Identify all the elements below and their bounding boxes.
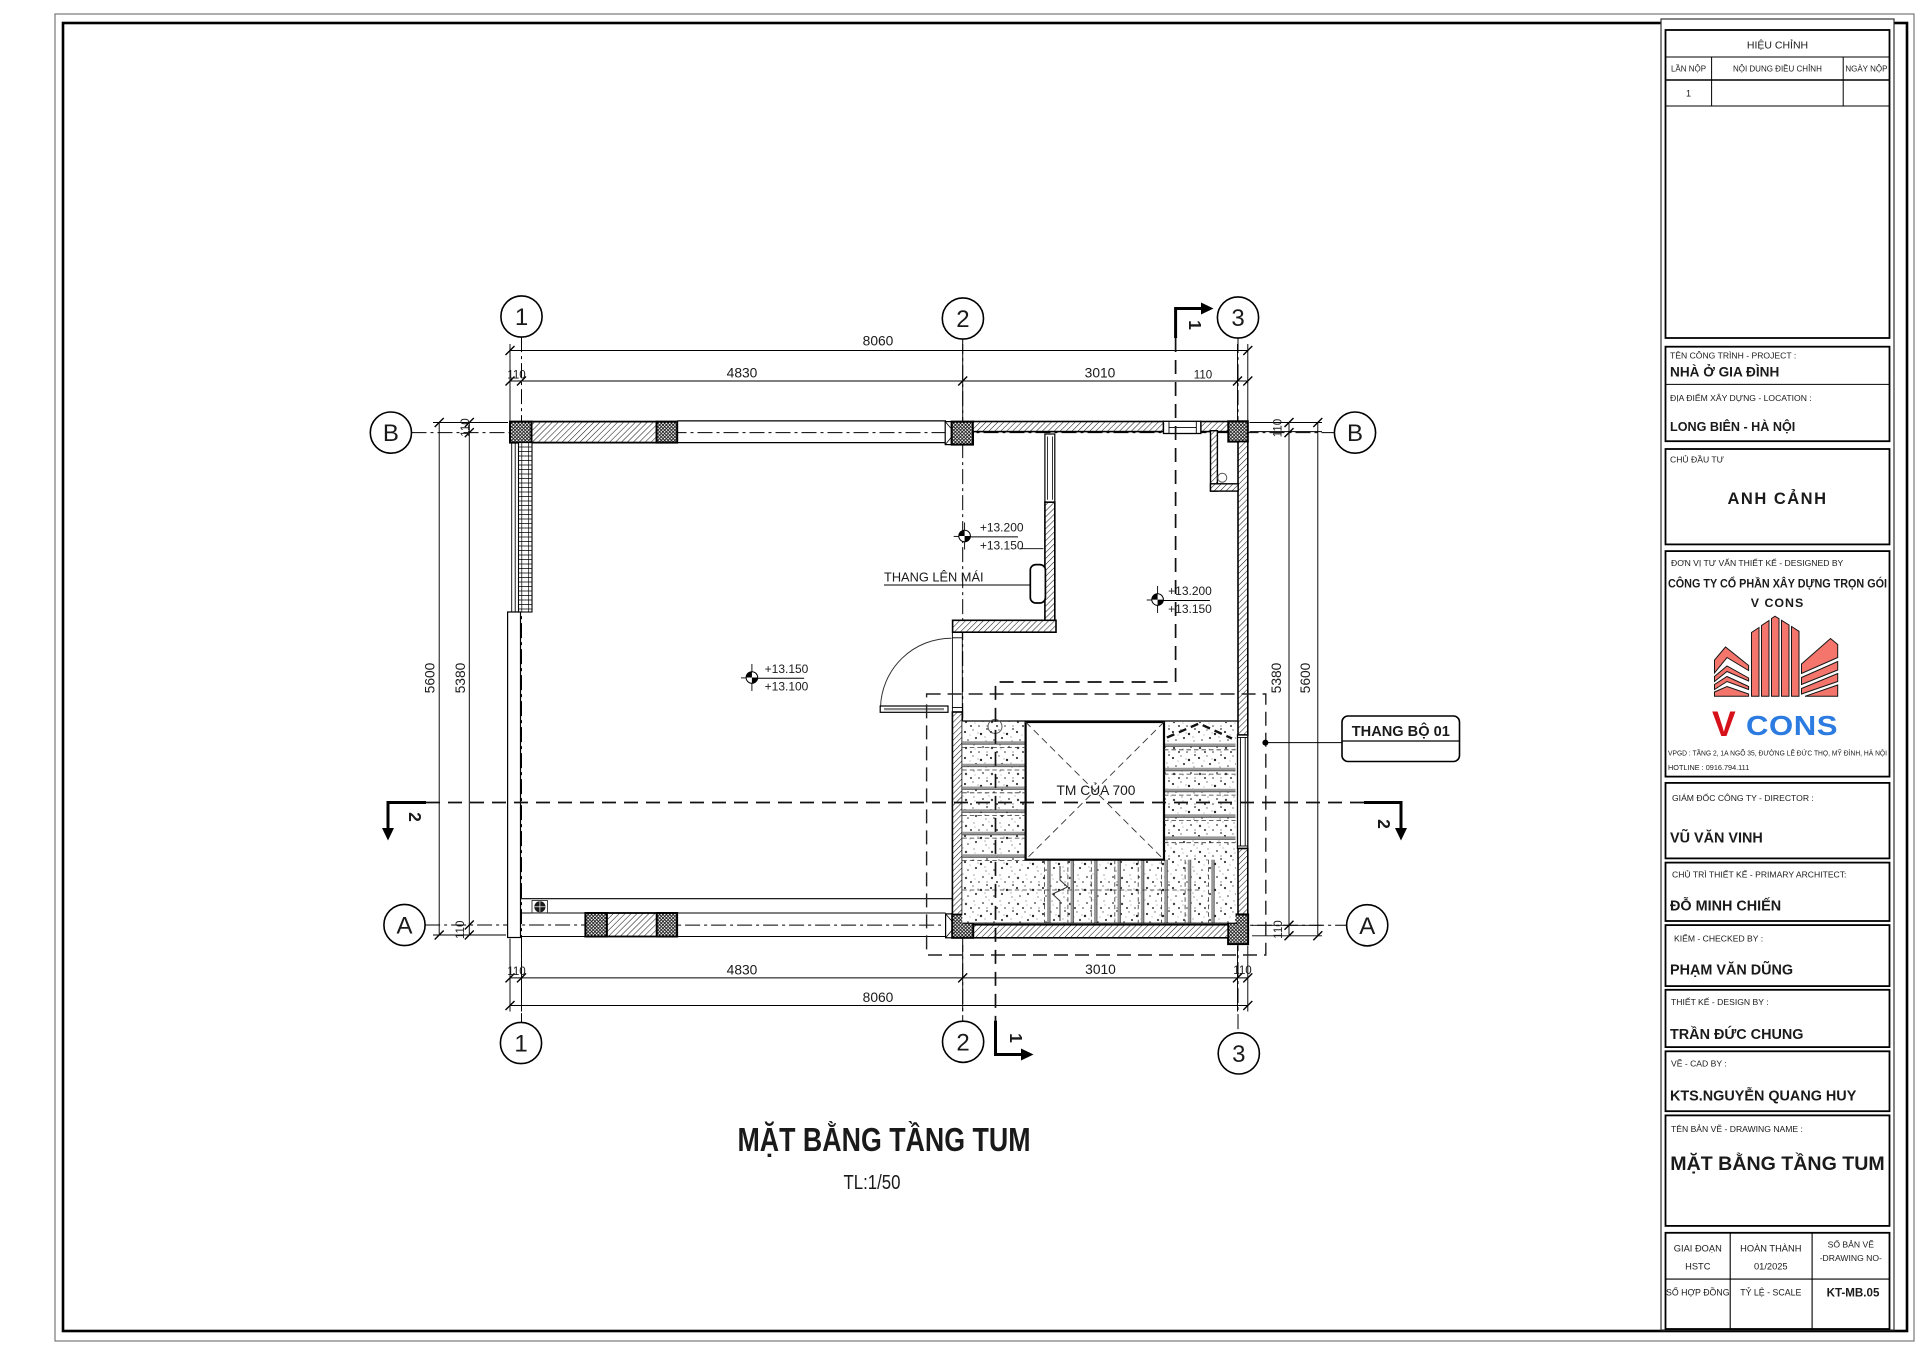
svg-text:SỐ HỢP ĐỒNG: SỐ HỢP ĐỒNG <box>1666 1287 1730 1298</box>
svg-text:+13.150: +13.150 <box>765 662 809 676</box>
svg-text:ĐỖ MINH CHIẾN: ĐỖ MINH CHIẾN <box>1670 896 1781 914</box>
svg-text:2: 2 <box>956 1029 969 1056</box>
svg-text:+13.150: +13.150 <box>980 539 1024 553</box>
svg-text:1: 1 <box>1686 89 1691 99</box>
svg-text:1: 1 <box>515 304 528 331</box>
svg-text:NHÀ Ở GIA ĐÌNH: NHÀ Ở GIA ĐÌNH <box>1670 365 1779 380</box>
svg-text:8060: 8060 <box>863 990 894 1005</box>
svg-text:KIỂM - CHECKED BY :: KIỂM - CHECKED BY : <box>1674 933 1763 944</box>
svg-text:3: 3 <box>1231 305 1244 332</box>
svg-text:VPGD : TẦNG 2, 1A NGÕ 35, ĐƯỜN: VPGD : TẦNG 2, 1A NGÕ 35, ĐƯỜNG LÊ ĐỨC T… <box>1668 747 1887 757</box>
svg-text:5600: 5600 <box>1298 662 1313 693</box>
svg-text:VẼ - CAD BY :: VẼ - CAD BY : <box>1671 1059 1727 1069</box>
svg-text:3010: 3010 <box>1085 962 1116 977</box>
svg-text:+13.100: +13.100 <box>765 680 809 694</box>
svg-text:5600: 5600 <box>423 662 438 693</box>
svg-text:THANG BỘ 01: THANG BỘ 01 <box>1352 722 1450 740</box>
svg-text:5380: 5380 <box>453 662 468 693</box>
svg-text:110: 110 <box>1233 964 1251 977</box>
svg-text:1: 1 <box>1006 1033 1026 1043</box>
svg-text:LẦN NỘP: LẦN NỘP <box>1671 64 1706 74</box>
svg-text:THIẾT KẾ - DESIGN BY :: THIẾT KẾ - DESIGN BY : <box>1671 997 1769 1007</box>
svg-text:THANG LÊN MÁI: THANG LÊN MÁI <box>884 570 984 585</box>
svg-text:GIAI ĐOẠN: GIAI ĐOẠN <box>1674 1244 1722 1254</box>
svg-text:CÔNG TY CỔ PHẦN XÂY DỰNG TRỌN: CÔNG TY CỔ PHẦN XÂY DỰNG TRỌN GÓI <box>1668 576 1887 591</box>
svg-text:HSTC: HSTC <box>1685 1262 1711 1272</box>
svg-text:1: 1 <box>1185 320 1205 330</box>
svg-text:4830: 4830 <box>727 962 758 977</box>
svg-text:110: 110 <box>459 418 472 436</box>
svg-text:ĐƠN VỊ TƯ VẤN THIẾT KẾ - DESIG: ĐƠN VỊ TƯ VẤN THIẾT KẾ - DESIGNED BY <box>1671 558 1844 568</box>
svg-text:PHẠM VĂN DŨNG: PHẠM VĂN DŨNG <box>1670 960 1793 978</box>
svg-text:+13.200: +13.200 <box>980 521 1024 535</box>
svg-text:8060: 8060 <box>863 334 894 349</box>
svg-text:110: 110 <box>1272 920 1285 938</box>
svg-text:HOÀN THÀNH: HOÀN THÀNH <box>1740 1244 1801 1254</box>
svg-text:MẶT BẰNG TẦNG TUM: MẶT BẰNG TẦNG TUM <box>1670 1151 1884 1175</box>
svg-text:01/2025: 01/2025 <box>1754 1262 1788 1272</box>
svg-text:ANH CẢNH: ANH CẢNH <box>1728 489 1828 508</box>
svg-text:2: 2 <box>956 306 969 333</box>
svg-text:TRẦN ĐỨC CHUNG: TRẦN ĐỨC CHUNG <box>1670 1025 1803 1043</box>
svg-text:2: 2 <box>405 812 425 822</box>
svg-text:NGÀY NỘP: NGÀY NỘP <box>1845 65 1887 74</box>
svg-text:GIÁM ĐỐC CÔNG TY - DIRECTOR :: GIÁM ĐỐC CÔNG TY - DIRECTOR : <box>1672 792 1814 803</box>
svg-text:TÊN BẢN VẼ - DRAWING NAME :: TÊN BẢN VẼ - DRAWING NAME : <box>1671 1123 1803 1134</box>
svg-text:110: 110 <box>1194 369 1212 382</box>
svg-text:SỐ BẢN VẼ: SỐ BẢN VẼ <box>1828 1239 1875 1250</box>
svg-text:4830: 4830 <box>727 366 758 381</box>
svg-text:-DRAWING NO-: -DRAWING NO- <box>1820 1253 1882 1263</box>
svg-text:KTS.NGUYỄN QUANG HUY: KTS.NGUYỄN QUANG HUY <box>1670 1088 1857 1105</box>
svg-text:A: A <box>396 913 412 940</box>
svg-text:CONS: CONS <box>1746 710 1838 741</box>
svg-text:KT-MB.05: KT-MB.05 <box>1827 1287 1880 1300</box>
svg-text:110: 110 <box>1272 419 1285 437</box>
svg-text:110: 110 <box>507 965 525 978</box>
svg-text:B: B <box>383 420 399 447</box>
svg-text:1: 1 <box>514 1031 527 1058</box>
svg-text:5380: 5380 <box>1269 662 1284 693</box>
svg-text:+13.150: +13.150 <box>1168 602 1212 616</box>
svg-text:CHỦ ĐẦU TƯ: CHỦ ĐẦU TƯ <box>1670 454 1724 465</box>
svg-text:B: B <box>1347 420 1363 447</box>
svg-text:TM CỦA 700: TM CỦA 700 <box>1057 781 1136 798</box>
svg-text:TL:1/50: TL:1/50 <box>844 1172 901 1194</box>
svg-text:LONG BIÊN - HÀ NỘI: LONG BIÊN - HÀ NỘI <box>1670 419 1795 434</box>
svg-text:CHỦ TRÌ THIẾT KẾ - PRIMARY ARC: CHỦ TRÌ THIẾT KẾ - PRIMARY ARCHITECT: <box>1672 869 1846 880</box>
svg-text:HOTLINE : 0916.794.111: HOTLINE : 0916.794.111 <box>1668 763 1749 772</box>
svg-text:110: 110 <box>507 369 525 382</box>
svg-text:TÊN CÔNG TRÌNH - PROJECT :: TÊN CÔNG TRÌNH - PROJECT : <box>1670 351 1796 361</box>
svg-text:3: 3 <box>1232 1041 1245 1068</box>
svg-text:MẶT BẰNG TẦNG TUM: MẶT BẰNG TẦNG TUM <box>738 1121 1031 1158</box>
svg-text:2: 2 <box>1374 819 1394 829</box>
svg-text:V: V <box>1712 704 1736 744</box>
svg-text:NỘI DUNG ĐIỀU CHỈNH: NỘI DUNG ĐIỀU CHỈNH <box>1733 64 1822 74</box>
svg-text:110: 110 <box>454 921 467 939</box>
svg-text:TỶ LỆ - SCALE: TỶ LỆ - SCALE <box>1740 1287 1801 1298</box>
svg-text:A: A <box>1359 913 1375 940</box>
svg-text:HIỆU CHỈNH: HIỆU CHỈNH <box>1747 39 1808 52</box>
svg-text:3010: 3010 <box>1085 366 1116 381</box>
svg-text:VŨ VĂN VINH: VŨ VĂN VINH <box>1670 829 1763 847</box>
svg-text:V CONS: V CONS <box>1751 596 1805 610</box>
svg-text:ĐỊA ĐIỂM XÂY DỰNG - LOCATION :: ĐỊA ĐIỂM XÂY DỰNG - LOCATION : <box>1670 392 1812 403</box>
svg-text:+13.200: +13.200 <box>1168 584 1212 598</box>
